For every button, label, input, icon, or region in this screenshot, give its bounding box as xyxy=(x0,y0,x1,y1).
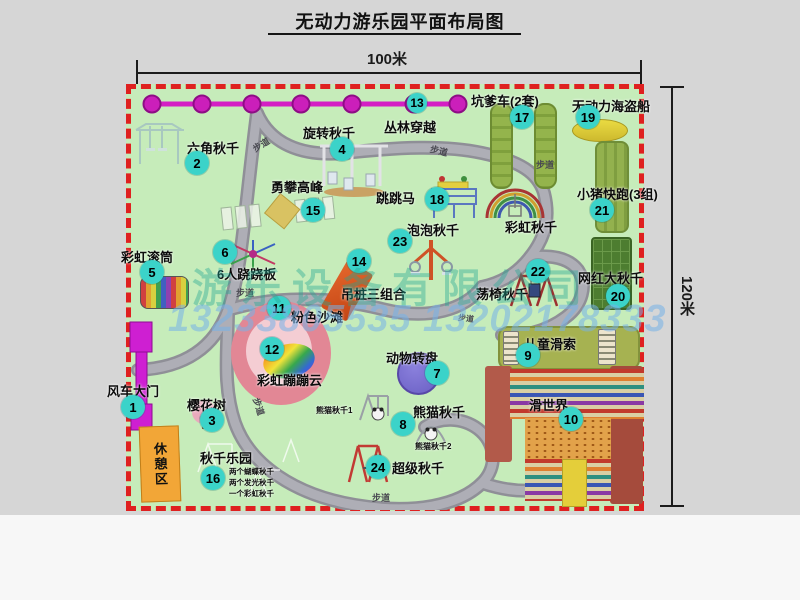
dimension-tick-top-left xyxy=(136,60,138,84)
road-band: 道 路 xyxy=(0,515,800,600)
sub-label-swing-park-3: 一个彩虹秋千 xyxy=(229,488,274,499)
facility-badge-17: 17 xyxy=(510,105,534,129)
facility-badge-7: 7 xyxy=(425,361,449,385)
rest-area-label: 休憩区 xyxy=(150,441,171,487)
facility-badge-24: 24 xyxy=(366,455,390,479)
facility-label-jumping-horse: 跳跳马 xyxy=(376,188,415,207)
trail-label: 步道 xyxy=(372,491,390,504)
dimension-width-label: 100米 xyxy=(367,48,407,69)
facility-badge-1: 1 xyxy=(121,395,145,419)
facility-label-rainbow-cloud: 彩虹蹦蹦云 xyxy=(257,370,322,389)
facility-label-jungle-crossing: 丛林穿越 xyxy=(384,117,436,136)
facility-label-bubble-swing: 泡泡秋千 xyxy=(407,220,459,239)
sub-label-panda-swing-2: 熊猫秋千2 xyxy=(415,441,451,452)
slide-world-block-icon xyxy=(485,366,512,462)
facility-badge-19: 19 xyxy=(576,105,600,129)
dimension-height-label: 120米 xyxy=(676,276,697,316)
facility-label-panda-swing: 熊猫秋千 xyxy=(413,402,465,421)
hexagon-swing-icon xyxy=(132,118,188,174)
page-title: 无动力游乐园平面布局图 xyxy=(0,8,800,34)
sub-label-panda-swing-1: 熊猫秋千1 xyxy=(316,405,352,416)
sub-label-swing-park-1: 两个蝴蝶秋千 xyxy=(229,466,274,477)
facility-badge-10: 10 xyxy=(559,407,583,431)
facility-label-climbing-peak: 勇攀高峰 xyxy=(271,177,323,196)
dimension-tick-top-right xyxy=(640,60,642,84)
facility-badge-2: 2 xyxy=(185,151,209,175)
title-underline xyxy=(268,33,521,35)
dimension-tick-right-bottom xyxy=(660,505,684,507)
facility-badge-5: 5 xyxy=(140,260,164,284)
facility-badge-4: 4 xyxy=(330,137,354,161)
dimension-line-right xyxy=(671,87,673,507)
facility-badge-15: 15 xyxy=(301,198,325,222)
phone-watermark: 13233805535 13202178333 xyxy=(168,298,667,341)
pit-car-track-icon xyxy=(534,103,557,189)
facility-badge-8: 8 xyxy=(391,412,415,436)
dimension-line-top xyxy=(137,72,641,74)
facility-label-rainbow-swing: 彩虹秋千 xyxy=(505,217,557,236)
facility-badge-3: 3 xyxy=(200,408,224,432)
sub-label-swing-park-2: 两个发光秋千 xyxy=(229,477,274,488)
facility-label-swing-park: 秋千乐园 xyxy=(200,448,252,467)
facility-badge-13: 13 xyxy=(407,93,427,113)
facility-badge-9: 9 xyxy=(516,343,540,367)
trail-label: 步道 xyxy=(536,158,554,171)
facility-badge-21: 21 xyxy=(590,198,614,222)
facility-badge-16: 16 xyxy=(201,466,225,490)
facility-badge-18: 18 xyxy=(425,187,449,211)
panda-swing-1-icon xyxy=(354,390,396,424)
dimension-tick-right-top xyxy=(660,86,684,88)
facility-badge-23: 23 xyxy=(388,229,412,253)
slide-world-yellow-icon xyxy=(562,459,587,507)
facility-label-super-swing: 超级秋千 xyxy=(392,458,444,477)
facility-label-pig-run: 小猪快跑(3组) xyxy=(577,184,658,203)
rest-area-box: 休憩区 xyxy=(139,425,182,502)
park-layout-page: 无动力游乐园平面布局图 100米 120米 步道 步道 步道 步道 xyxy=(0,0,800,600)
